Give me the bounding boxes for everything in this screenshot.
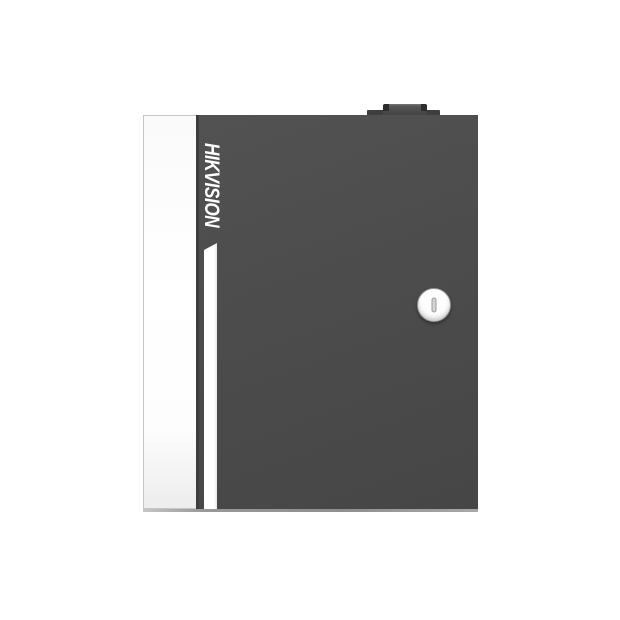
front-door: HIKVISION (196, 115, 478, 509)
hinge-cap-right (421, 104, 427, 111)
cam-lock (417, 288, 451, 322)
product-photo: HIKVISION (0, 0, 620, 620)
left-edge-panel (143, 115, 196, 509)
bottom-edge-bevel (143, 509, 478, 512)
keyhole-icon (432, 298, 437, 313)
hinge-cap-left (383, 104, 389, 111)
enclosure-body: HIKVISION (143, 115, 478, 512)
accent-stripe (204, 243, 217, 509)
